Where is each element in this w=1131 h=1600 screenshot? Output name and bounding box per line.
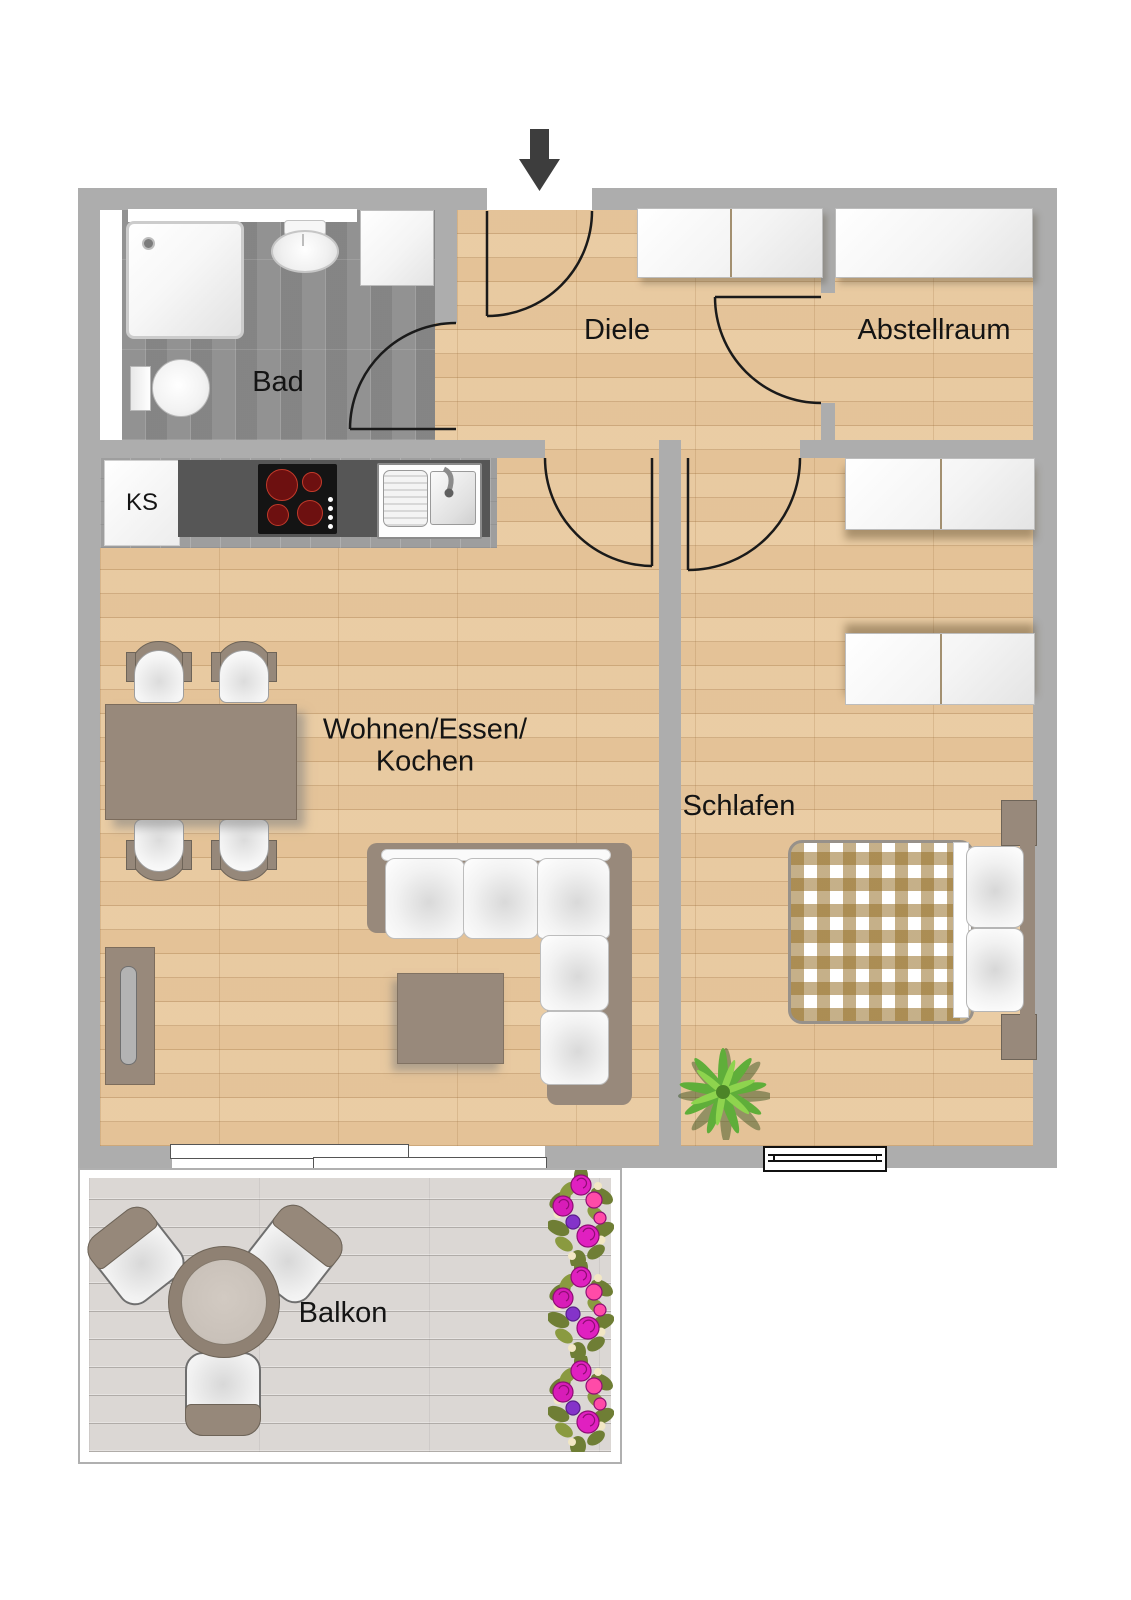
balcony-chair xyxy=(185,1352,261,1436)
sofa-cushion xyxy=(385,858,465,939)
sink-basin xyxy=(430,471,476,525)
outer-wall-top-left xyxy=(78,188,487,210)
entrance-arrow-icon xyxy=(519,129,560,191)
shower xyxy=(126,221,244,339)
bed-pillow xyxy=(966,928,1024,1012)
cooktop-knob xyxy=(328,515,333,520)
interior-wall-horizontal-left xyxy=(78,440,545,458)
bathroom-cabinet xyxy=(360,210,434,286)
cooktop xyxy=(258,464,337,534)
bed-post-bottom xyxy=(1001,1014,1037,1060)
fridge-label: KS xyxy=(126,489,158,517)
cooktop-knob xyxy=(328,506,333,511)
bed-duvet xyxy=(788,840,974,1024)
room-label-bad: Bad xyxy=(252,366,304,398)
burner-icon xyxy=(266,469,298,501)
sink-drainer xyxy=(383,470,428,527)
toilet-tank xyxy=(130,366,151,411)
room-label-wohnen-line1: Wohnen/Essen/ xyxy=(323,714,527,746)
diele-abstellraum-wall-lower xyxy=(821,403,835,458)
bathroom-sink xyxy=(271,230,339,273)
flower-cluster-icon xyxy=(548,1356,614,1452)
room-label-diele: Diele xyxy=(584,314,650,346)
kitchen-sink-unit xyxy=(377,463,482,539)
coffee-table xyxy=(397,973,504,1064)
dining-chair xyxy=(211,641,277,705)
burner-icon xyxy=(267,504,289,526)
bathroom-right-wall xyxy=(435,210,457,323)
flower-cluster-icon xyxy=(548,1170,614,1266)
bed-pillow xyxy=(966,846,1024,928)
sideboard xyxy=(105,947,155,1085)
cooktop-knob xyxy=(328,497,333,502)
abstellraum-wardrobe xyxy=(835,208,1033,278)
floor-plan: KS xyxy=(0,0,1131,1600)
dining-chair xyxy=(211,817,277,881)
sofa-cushion xyxy=(540,935,609,1011)
bedroom-wardrobe-top xyxy=(845,458,1035,530)
outer-wall-left xyxy=(78,188,100,1168)
room-label-wohnen-line2: Kochen xyxy=(323,746,527,778)
bedroom-wardrobe-middle xyxy=(845,633,1035,705)
burner-icon xyxy=(302,472,322,492)
shower-drain-icon xyxy=(142,237,155,250)
dining-table xyxy=(105,704,297,820)
bathroom-window-left xyxy=(100,210,122,440)
dining-chair xyxy=(126,817,192,881)
bed-post-top xyxy=(1001,800,1037,846)
room-label-wohnen: Wohnen/Essen/ Kochen xyxy=(323,714,527,779)
flower-cluster-icon xyxy=(548,1262,614,1358)
plant-icon xyxy=(676,1046,770,1140)
room-label-schlafen: Schlafen xyxy=(683,790,796,822)
bedroom-window xyxy=(763,1146,887,1172)
diele-abstellraum-wall-upper xyxy=(821,210,835,293)
sofa-cushion xyxy=(463,858,539,939)
outer-wall-bottom-left xyxy=(78,1146,172,1168)
sofa-cushion xyxy=(537,858,610,939)
sofa-cushion xyxy=(540,1011,609,1085)
burner-icon xyxy=(297,500,323,526)
sideboard-handle xyxy=(120,966,137,1065)
fridge: KS xyxy=(104,460,180,546)
balcony-table xyxy=(168,1246,280,1358)
room-label-balkon: Balkon xyxy=(299,1297,388,1329)
outer-wall-top-right xyxy=(592,188,1057,210)
diele-wardrobe xyxy=(637,208,823,278)
cooktop-knob xyxy=(328,524,333,529)
living-bedroom-wall xyxy=(659,440,681,1146)
dining-chair xyxy=(126,641,192,705)
toilet-bowl xyxy=(152,359,210,417)
room-label-abstellraum: Abstellraum xyxy=(857,314,1010,346)
